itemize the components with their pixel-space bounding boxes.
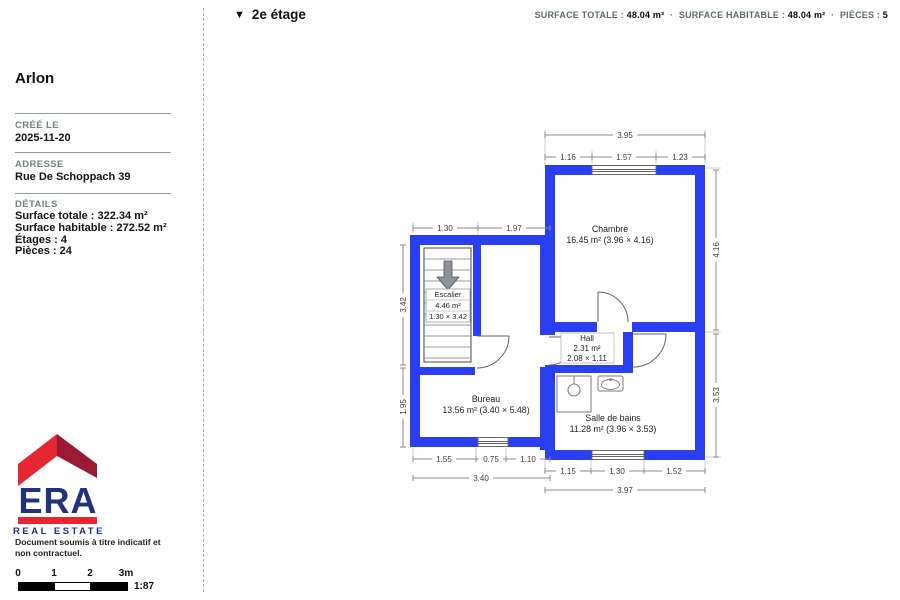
wall: [632, 322, 705, 332]
room-size-escalier: 1.30 × 3.42: [429, 312, 467, 321]
floorplan-page: ▼ 2e étage SURFACE TOTALE : 48.04 m² · S…: [0, 0, 900, 600]
surface-totale-label: SURFACE TOTALE :: [535, 10, 624, 20]
wall: [473, 245, 481, 336]
wall: [545, 322, 597, 332]
room-size-hall: 2.08 × 1.11: [567, 354, 607, 363]
dim-bottom-left-seg1: 1.55: [436, 455, 452, 464]
wall: [695, 165, 705, 460]
divider: [15, 113, 171, 114]
staircase: Escalier 4.46 m² 1.30 × 3.42: [424, 248, 471, 362]
surface-habitable-value: 48.04 m²: [788, 10, 826, 20]
surface-summary: SURFACE TOTALE : 48.04 m² · SURFACE HABI…: [535, 10, 888, 20]
bathroom-fixtures: [557, 376, 623, 412]
shower-drain: [568, 384, 580, 396]
separator: ·: [667, 10, 676, 20]
floor-selector[interactable]: ▼ 2e étage: [234, 7, 306, 22]
surface-totale-value: 48.04 m²: [627, 10, 665, 20]
created-value: 2025-11-20: [15, 132, 71, 144]
dim-left-wing-top-seg1: 1.30: [437, 224, 453, 233]
era-logo: ERA REAL ESTATE: [0, 425, 180, 540]
detail-surface-habitable: Surface habitable : 272.52 m²: [15, 223, 167, 235]
scale-segment: [90, 582, 128, 591]
dim-top-seg1: 1.16: [560, 153, 576, 162]
wall: [410, 235, 550, 245]
dim-left-wing-top-seg2: 1.97: [506, 224, 522, 233]
scale-segment: [18, 582, 56, 591]
floor-label: 2e étage: [252, 7, 306, 22]
window: [592, 166, 656, 175]
window: [478, 438, 508, 447]
scale-tick-0: 0: [7, 568, 29, 579]
dim-bottom-left-seg3: 1.10: [520, 455, 536, 464]
door-bureau: [477, 336, 509, 368]
dim-top-total: 3.95: [617, 131, 633, 140]
sidebar-divider: [203, 8, 204, 592]
dim-bottom-left-seg2: 0.75: [483, 455, 499, 464]
wall: [410, 367, 475, 375]
disclaimer-text: Document soumis à titre indicatif et non…: [15, 537, 173, 558]
room-name-chambre: Chambre: [592, 224, 628, 234]
details-list: Surface totale : 322.34 m² Surface habit…: [15, 211, 167, 258]
dim-bottom-right-seg2: 1.30: [609, 467, 625, 476]
separator: ·: [828, 10, 837, 20]
dim-bottom-right-seg3: 1.52: [666, 467, 682, 476]
address-label: ADRESSE: [15, 159, 64, 170]
chevron-down-icon: ▼: [234, 9, 245, 21]
pieces-value: 5: [883, 10, 888, 20]
wall: [540, 235, 555, 335]
room-area-hall: 2.31 m²: [573, 344, 600, 353]
scale-segment: [54, 582, 92, 591]
address-value: Rue De Schoppach 39: [15, 171, 131, 183]
scale-tick-2: 2: [79, 568, 101, 579]
detail-pieces: Pièces : 24: [15, 246, 167, 258]
dim-top-seg3: 1.23: [672, 153, 688, 162]
created-label: CRÉÉ LE: [15, 120, 59, 131]
floor-plan-drawing: Escalier 4.46 m² 1.30 × 3.42 Chambre 16.…: [388, 108, 736, 500]
dim-bottom-right-seg1: 1.15: [560, 467, 576, 476]
door-chambre: [598, 292, 628, 322]
door-salle-de-bains: [633, 334, 666, 367]
scale-tick-3: 3m: [115, 568, 137, 579]
room-name-escalier: Escalier: [435, 290, 462, 299]
divider: [15, 193, 171, 194]
room-name-bureau: Bureau: [472, 394, 500, 404]
dim-top-seg2: 1.57: [616, 153, 632, 162]
logo-roof-left: [18, 434, 57, 486]
logo-tagline-text: REAL ESTATE: [13, 526, 105, 537]
logo-roof-right: [57, 434, 97, 478]
dim-left-v-top: 3.42: [399, 297, 408, 313]
room-name-hall: Hall: [580, 334, 594, 343]
dim-left-v-bottom: 1.95: [399, 399, 408, 415]
logo-red-bar: [18, 517, 97, 524]
dim-right-v-bottom: 3.53: [712, 387, 721, 403]
logo-brand-text: ERA: [18, 480, 97, 521]
wall: [545, 365, 633, 373]
scale-bar: 0 1 2 3m 1:87: [12, 568, 197, 598]
scale-ratio: 1:87: [134, 581, 154, 592]
wall: [410, 235, 420, 447]
room-area-escalier: 4.46 m²: [435, 301, 461, 310]
scale-tick-1: 1: [43, 568, 65, 579]
sink-tap: [609, 378, 612, 381]
divider: [15, 152, 171, 153]
room-area-bureau: 13.56 m² (3.40 × 5.48): [442, 405, 529, 415]
room-name-salle-de-bains: Salle de bains: [585, 413, 641, 423]
surface-habitable-label: SURFACE HABITABLE :: [679, 10, 785, 20]
room-area-salle-de-bains: 11.28 m² (3.96 × 3.53): [570, 424, 657, 434]
room-area-chambre: 16.45 m² (3.96 × 4.16): [566, 235, 653, 245]
page-title: Arlon: [15, 70, 54, 87]
details-label: DÉTAILS: [15, 199, 58, 210]
window: [592, 451, 644, 460]
dim-bottom-left-total: 3.40: [473, 474, 489, 483]
dim-bottom-right-total: 3.97: [617, 486, 633, 495]
dim-right-v-top: 4.16: [712, 242, 721, 258]
pieces-label: PIÈCES :: [840, 10, 880, 20]
